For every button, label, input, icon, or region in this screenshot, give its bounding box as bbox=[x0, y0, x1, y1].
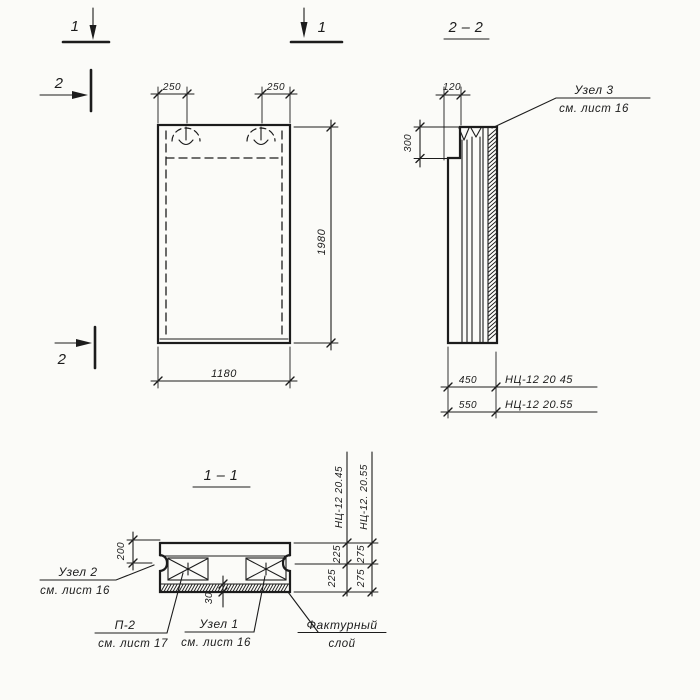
section-cut-markers: 1 1 2 2 bbox=[40, 8, 342, 368]
chain1-top-225: 225 bbox=[332, 545, 343, 564]
cut-label-1-left: 1 bbox=[71, 18, 80, 35]
cut-label-1-right: 1 bbox=[318, 19, 327, 36]
texture-layer-callout: Фактурный слой bbox=[288, 592, 386, 650]
node3-title: Узел 3 bbox=[573, 83, 613, 97]
loop-anchor-hook bbox=[254, 140, 268, 145]
inner-channel-lines bbox=[462, 127, 483, 343]
dim-200: 200 bbox=[116, 542, 127, 561]
p2-title: П-2 bbox=[115, 618, 136, 632]
cut-marker-1-left: 1 bbox=[63, 8, 109, 42]
chain2-mark: НЦ-12. 20.55 bbox=[359, 464, 370, 530]
dim-120: 120 bbox=[443, 82, 461, 93]
cut-marker-2-bottom: 2 bbox=[55, 327, 95, 368]
void-cross-lines bbox=[169, 559, 207, 579]
side-view-dimensions: 120 300 450 НЦ-12 20 45 550 НЦ-12 20.55 bbox=[403, 82, 597, 418]
node3-callout: Узел 3 см. лист 16 bbox=[492, 83, 650, 128]
channel-void-right bbox=[246, 558, 286, 580]
dim-250-left: 250 bbox=[162, 82, 181, 93]
lifting-loop-right bbox=[247, 127, 275, 145]
chain1-mark: НЦ-12 20.45 bbox=[334, 466, 345, 528]
dim-1980: 1980 bbox=[316, 228, 328, 255]
cut-label-2-top: 2 bbox=[54, 75, 64, 92]
front-view: 250 250 1980 1180 bbox=[151, 82, 338, 388]
texture-label-line2: слой bbox=[328, 638, 355, 650]
chain2-top-275: 275 bbox=[356, 545, 367, 564]
cut-marker-2-top: 2 bbox=[40, 70, 91, 111]
cut-marker-1-right: 1 bbox=[291, 8, 342, 42]
lifting-loop-left bbox=[172, 127, 200, 145]
dim-30: 30 bbox=[204, 592, 215, 604]
chain2-bottom-275: 275 bbox=[356, 569, 367, 588]
section-dimension-chains-right: НЦ-12 20.45 НЦ-12. 20.55 225 225 275 275 bbox=[294, 452, 378, 596]
void-cross-lines bbox=[247, 559, 285, 579]
p2-ref: см. лист 17 bbox=[98, 638, 168, 650]
cut-label-2-bottom: 2 bbox=[57, 351, 67, 368]
texture-label-line1: Фактурный bbox=[306, 618, 377, 632]
node1-ref: см. лист 16 bbox=[181, 637, 251, 649]
extension-lines-200 bbox=[127, 540, 160, 563]
node3-ref: см. лист 16 bbox=[559, 103, 629, 115]
dim-550: 550 bbox=[459, 400, 477, 411]
dim-300: 300 bbox=[403, 134, 414, 152]
dim-450: 450 bbox=[459, 375, 477, 386]
mark-nc-12-20-55: НЦ-12 20.55 bbox=[505, 399, 573, 411]
node2-callout: Узел 2 см. лист 16 bbox=[40, 565, 154, 597]
hidden-edges-dashed bbox=[166, 131, 282, 337]
cut-arrow-right-icon bbox=[76, 339, 92, 347]
facing-layer-hatch bbox=[489, 129, 497, 340]
side-view-2-2: 2 – 2 120 300 450 НЦ-12 20 45 550 НЦ-12 … bbox=[403, 20, 650, 418]
dim-1180: 1180 bbox=[211, 368, 237, 380]
leader-line bbox=[95, 573, 183, 633]
cut-arrow-down-icon bbox=[90, 25, 97, 40]
extension-lines-300 bbox=[414, 127, 459, 159]
section-view-1-1: 1 – 1 200 30 НЦ-12 20.45 НЦ-12. bbox=[40, 452, 386, 650]
view-title-2-2: 2 – 2 bbox=[448, 20, 484, 36]
mark-nc-12-20-45: НЦ-12 20 45 bbox=[505, 374, 573, 386]
panel-technical-drawing: 1 1 2 2 bbox=[0, 0, 700, 700]
cut-arrow-right-icon bbox=[72, 91, 88, 99]
view-title-1-1: 1 – 1 bbox=[204, 468, 239, 484]
loop-anchor-hook bbox=[179, 140, 193, 145]
chain1-bottom-225: 225 bbox=[327, 569, 338, 588]
channel-void-left bbox=[168, 558, 208, 580]
top-joint-grooves bbox=[459, 128, 481, 140]
node1-title: Узел 1 bbox=[198, 617, 238, 631]
cut-arrow-down-icon bbox=[301, 22, 308, 38]
drawing-sheet: 1 1 2 2 bbox=[0, 0, 700, 700]
node2-title: Узел 2 bbox=[57, 565, 97, 579]
dim-250-right: 250 bbox=[266, 82, 285, 93]
node2-ref: см. лист 16 bbox=[40, 585, 110, 597]
